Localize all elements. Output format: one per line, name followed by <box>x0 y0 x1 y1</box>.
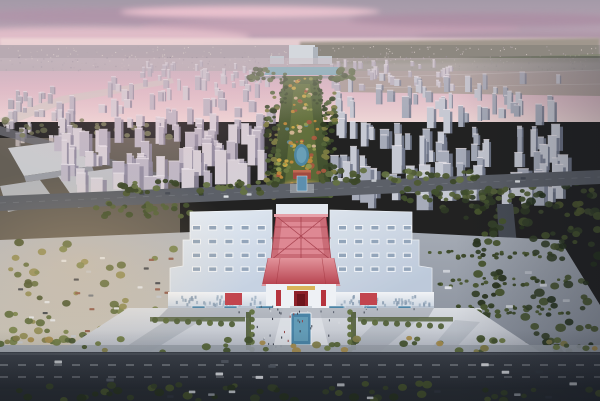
speck <box>321 310 322 312</box>
skylight-glass <box>258 240 265 244</box>
speck <box>428 304 430 307</box>
tree <box>347 309 353 315</box>
tower-top <box>343 161 351 162</box>
tower <box>381 135 387 149</box>
speck <box>380 53 381 54</box>
speck <box>510 46 511 47</box>
skylight-glass <box>355 267 362 271</box>
speck <box>251 298 253 301</box>
skylight-glass <box>404 267 411 271</box>
tree <box>405 321 411 327</box>
speck <box>254 296 256 299</box>
tree <box>333 180 341 186</box>
tower-top <box>419 136 424 137</box>
speck <box>549 50 550 51</box>
tree <box>438 196 443 200</box>
speck <box>440 49 441 50</box>
speck <box>307 311 308 313</box>
speck <box>377 308 378 310</box>
tree <box>306 164 312 169</box>
tree <box>328 167 332 170</box>
speck <box>257 326 258 328</box>
speck <box>58 55 59 56</box>
speck <box>414 295 416 298</box>
skylight-glass <box>339 240 346 244</box>
speck <box>392 53 393 54</box>
tower-top <box>330 155 339 156</box>
tower <box>394 124 400 134</box>
speck <box>491 49 492 50</box>
speck <box>269 56 270 57</box>
speck <box>268 53 269 54</box>
speck <box>254 299 256 302</box>
speck <box>429 47 430 48</box>
tower-top <box>394 123 400 124</box>
speck <box>37 51 38 52</box>
tower-top <box>361 122 367 123</box>
speck <box>429 56 430 57</box>
speck <box>388 53 389 54</box>
tree <box>266 182 271 186</box>
skylight-glass <box>371 267 378 271</box>
tree <box>276 167 281 171</box>
speck <box>269 308 270 310</box>
tree <box>271 181 279 187</box>
skylight-glass <box>404 226 411 230</box>
speck <box>370 47 371 48</box>
tower-side <box>387 136 389 149</box>
tree <box>337 168 344 174</box>
skylight-glass <box>388 267 395 271</box>
speck <box>30 52 31 53</box>
vehicle <box>391 183 396 185</box>
tower <box>419 136 424 165</box>
lattice-top-chord <box>274 214 328 217</box>
speck <box>389 51 390 52</box>
speck <box>395 298 397 301</box>
speck <box>75 51 76 52</box>
speck <box>343 46 344 47</box>
tree <box>256 187 262 191</box>
tower-side <box>424 139 426 166</box>
speck <box>19 55 20 56</box>
speck <box>423 304 425 307</box>
speck <box>408 299 410 302</box>
speck <box>581 49 582 50</box>
tower <box>361 123 367 147</box>
speck <box>500 50 501 51</box>
speck <box>299 311 300 313</box>
speck <box>329 319 330 321</box>
hedge-strip <box>358 317 453 322</box>
skylight-glass <box>388 240 395 244</box>
tower-side <box>410 135 412 150</box>
tower-top <box>350 146 357 147</box>
bottom-vignette <box>0 330 600 401</box>
tree <box>414 180 422 186</box>
speck <box>546 46 547 47</box>
tower-top <box>443 163 451 164</box>
tower-top <box>436 142 443 143</box>
speck <box>398 301 400 304</box>
speck <box>427 47 428 48</box>
tower-side <box>433 152 435 162</box>
speck <box>8 48 9 49</box>
speck <box>456 47 457 48</box>
skylight-glass <box>355 226 362 230</box>
speck <box>446 56 447 57</box>
speck <box>504 49 505 50</box>
speck <box>462 53 463 54</box>
tree <box>280 176 284 179</box>
speck <box>56 56 57 57</box>
tree <box>246 184 251 188</box>
tower-side <box>356 123 358 139</box>
right-wing-entrance <box>360 293 377 305</box>
tree <box>391 177 398 182</box>
speck <box>53 54 54 55</box>
tree <box>347 317 353 323</box>
skylight-glass <box>355 240 362 244</box>
tree <box>310 156 313 158</box>
skylight-glass <box>242 226 249 230</box>
speck <box>277 309 278 311</box>
tree <box>438 323 444 329</box>
tree <box>329 128 335 133</box>
tree <box>428 251 432 254</box>
skylight-glass <box>258 267 265 271</box>
speck <box>339 322 340 324</box>
tree <box>438 251 442 254</box>
speck <box>293 313 294 315</box>
speck <box>388 49 389 50</box>
tower-top <box>392 145 402 146</box>
speck <box>221 49 222 50</box>
tower-side <box>367 125 369 147</box>
skylight-glass <box>388 254 395 258</box>
red-hip-roof <box>262 258 340 286</box>
speck <box>503 47 504 48</box>
tree <box>451 278 456 282</box>
tree <box>249 324 255 330</box>
tree <box>238 181 245 186</box>
tree <box>321 169 326 173</box>
tower-top <box>381 134 387 135</box>
speck <box>184 48 185 49</box>
skylight-glass <box>388 226 395 230</box>
red-banner <box>321 290 326 306</box>
speck <box>412 296 414 299</box>
speck <box>386 54 387 55</box>
speck <box>272 318 273 320</box>
park-pavilion-roof <box>293 170 311 173</box>
speck <box>298 319 299 321</box>
skylight-glass <box>258 254 265 258</box>
speck <box>591 48 592 49</box>
speck <box>412 302 414 305</box>
tree <box>329 139 334 143</box>
tree <box>407 198 414 203</box>
speck <box>414 308 415 310</box>
speck <box>250 303 252 306</box>
vehicle <box>247 193 252 195</box>
skylight-glass <box>371 254 378 258</box>
speck <box>18 50 19 51</box>
tower-side <box>402 136 405 150</box>
tree <box>416 322 422 328</box>
speck <box>401 303 403 306</box>
tree <box>449 192 455 197</box>
tree <box>423 176 429 181</box>
skylight-glass <box>339 267 346 271</box>
tree <box>255 180 260 184</box>
rendering-canvas <box>0 0 600 401</box>
tower-top <box>380 129 390 130</box>
tree <box>347 324 353 330</box>
speck <box>280 312 281 314</box>
tower <box>405 134 410 150</box>
speck <box>433 53 434 54</box>
speck <box>411 47 412 48</box>
speck <box>511 47 512 48</box>
tower-top <box>394 133 402 134</box>
tree <box>240 189 248 195</box>
speck <box>405 302 407 305</box>
tower-top <box>437 131 444 132</box>
speck <box>398 298 400 301</box>
tree <box>286 166 290 169</box>
tree <box>352 173 357 177</box>
tower-top <box>369 127 374 128</box>
speck <box>386 48 387 49</box>
speck <box>388 56 389 57</box>
speck <box>47 54 48 55</box>
vehicle <box>224 195 229 197</box>
tree <box>450 250 453 253</box>
tree <box>405 168 412 174</box>
vehicle <box>445 286 452 289</box>
tower-top <box>360 166 371 167</box>
speck <box>270 310 271 312</box>
skylight-glass <box>339 226 346 230</box>
tree <box>321 142 327 147</box>
tower-top <box>359 155 365 156</box>
tree <box>437 283 441 286</box>
speck <box>364 311 365 313</box>
main-door-inner <box>297 294 305 308</box>
tree <box>325 171 333 177</box>
tree <box>277 171 282 175</box>
skylight-glass <box>404 254 411 258</box>
speck <box>302 320 303 322</box>
speck <box>66 47 67 48</box>
speck <box>74 50 75 51</box>
tree <box>442 173 450 179</box>
skylight-glass <box>404 240 411 244</box>
speck <box>419 49 420 50</box>
tree <box>431 189 439 195</box>
speck <box>412 52 413 53</box>
speck <box>248 56 249 57</box>
speck <box>550 53 551 54</box>
speck <box>138 46 139 47</box>
speck <box>297 313 298 315</box>
speck <box>212 47 213 48</box>
tower-side <box>374 129 375 141</box>
speck <box>385 57 386 58</box>
speck <box>41 49 42 50</box>
north-pool <box>297 176 307 191</box>
speck <box>352 302 354 305</box>
skylight-glass <box>258 226 265 230</box>
speck <box>456 50 457 51</box>
speck <box>70 54 71 55</box>
speck <box>428 49 429 50</box>
speck <box>460 54 461 55</box>
tower-top <box>419 164 431 165</box>
tree <box>444 198 449 202</box>
tree <box>283 168 289 173</box>
tree <box>441 207 450 214</box>
tree <box>361 319 367 325</box>
speck <box>515 48 516 49</box>
speck <box>255 46 256 47</box>
vehicle <box>371 179 376 181</box>
skylight-glass <box>355 254 362 258</box>
speck <box>587 53 588 54</box>
speck <box>592 53 593 54</box>
tower-side <box>427 142 429 162</box>
tree <box>394 321 400 327</box>
tree <box>264 178 269 182</box>
tower <box>392 146 402 174</box>
tower-top <box>405 133 410 134</box>
speck <box>37 56 38 57</box>
speck <box>279 53 280 54</box>
speck <box>310 327 311 329</box>
speck <box>382 301 384 304</box>
speck <box>280 318 281 320</box>
speck <box>333 311 334 313</box>
tower-top <box>406 165 415 166</box>
speck <box>13 46 14 47</box>
speck <box>363 56 364 57</box>
speck <box>334 50 335 51</box>
speck <box>425 301 427 304</box>
tower-top <box>422 129 430 130</box>
cloud <box>120 6 380 18</box>
speck <box>95 50 96 51</box>
speck <box>595 48 596 49</box>
tower-side <box>400 124 402 133</box>
skylight-glass <box>371 226 378 230</box>
tree <box>323 137 329 142</box>
speck <box>320 49 321 50</box>
tree <box>249 317 255 323</box>
speck <box>284 51 285 52</box>
tower <box>350 122 356 139</box>
tower <box>370 128 374 141</box>
skylight-glass <box>371 240 378 244</box>
speck <box>31 56 32 57</box>
tower-top <box>340 155 348 156</box>
speck <box>220 52 221 53</box>
tree <box>196 188 204 194</box>
tree <box>406 174 413 180</box>
speck <box>563 53 564 54</box>
red-banner <box>276 290 281 306</box>
tree <box>401 195 407 200</box>
speck <box>157 47 158 48</box>
tower-top <box>438 151 449 152</box>
tree <box>372 320 378 326</box>
tree <box>360 168 367 174</box>
speck <box>344 300 346 303</box>
speck <box>261 306 262 308</box>
tree <box>219 185 227 191</box>
speck <box>58 49 59 50</box>
tree <box>332 147 337 151</box>
tree <box>329 150 334 154</box>
speck <box>279 312 280 314</box>
speck <box>373 46 374 47</box>
speck <box>386 52 387 53</box>
speck <box>259 301 261 304</box>
tower-top <box>435 162 447 163</box>
speck <box>285 52 286 53</box>
tree <box>229 321 235 327</box>
speck <box>239 311 240 313</box>
skylight-glass <box>339 254 346 258</box>
speck <box>384 304 386 307</box>
tree <box>351 180 358 186</box>
speck <box>73 48 74 49</box>
tree <box>321 153 328 158</box>
tower-side <box>345 120 347 138</box>
aerial-rendering-image <box>0 0 600 401</box>
speck <box>367 57 368 58</box>
speck <box>311 325 312 327</box>
tree <box>309 153 313 156</box>
speck <box>353 295 355 298</box>
tree <box>383 320 389 326</box>
speck <box>244 52 245 53</box>
tree <box>427 323 433 329</box>
speck <box>465 49 466 50</box>
tree <box>218 321 224 327</box>
tree <box>312 148 316 151</box>
tree <box>404 186 412 192</box>
speck <box>469 48 470 49</box>
speck <box>188 47 189 48</box>
vehicle <box>443 270 450 273</box>
speck <box>271 55 272 56</box>
tree <box>415 191 421 195</box>
tree <box>400 190 405 194</box>
speck <box>272 306 273 308</box>
tree <box>425 171 430 175</box>
speck <box>419 303 421 306</box>
speck <box>478 49 479 50</box>
speck <box>338 48 339 49</box>
speck <box>463 51 464 52</box>
speck <box>290 316 291 318</box>
speck <box>299 321 300 323</box>
speck <box>353 48 354 49</box>
speck <box>526 54 527 55</box>
signboard <box>287 286 315 290</box>
tree <box>427 198 433 203</box>
